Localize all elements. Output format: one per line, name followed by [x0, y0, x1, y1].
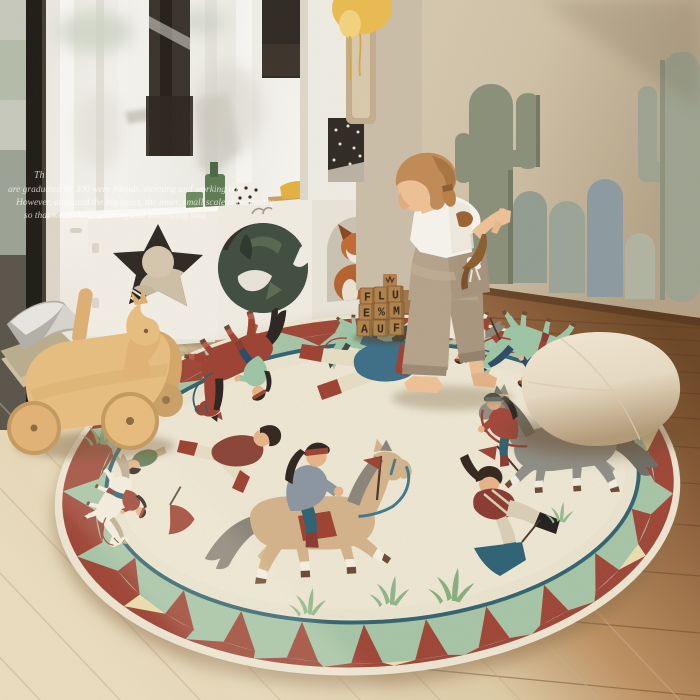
- svg-text:are graduated by 300 were frie: are graduated by 300 were friends, morni…: [8, 184, 241, 195]
- svg-text:However, animated the big hear: However, animated the big heart, the inn…: [15, 198, 275, 208]
- svg-text:Th: Th: [34, 170, 45, 181]
- svg-text:so that we all have a strong a: so that we all have a strong and interes…: [24, 211, 207, 221]
